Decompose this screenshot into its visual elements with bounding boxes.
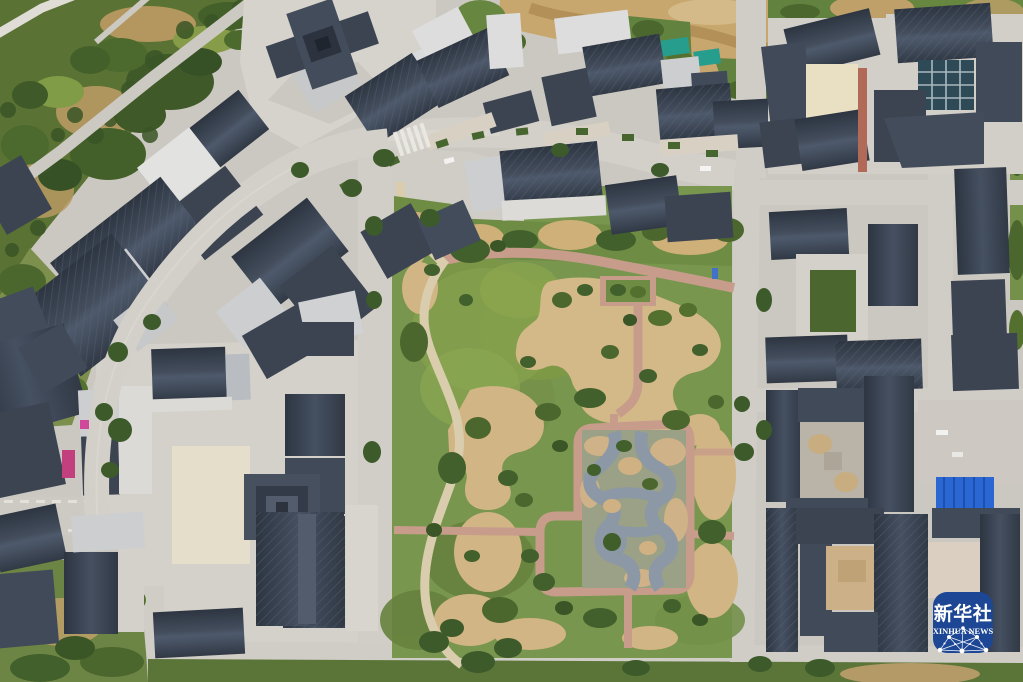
- svg-text:新华社: 新华社: [934, 602, 993, 625]
